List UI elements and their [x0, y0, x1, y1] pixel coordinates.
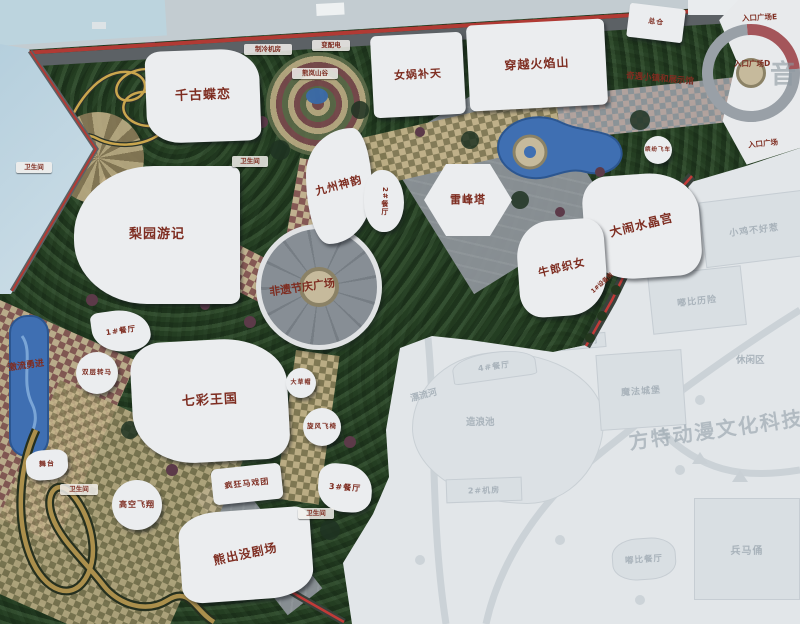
garden-valley-tag: 熊岚山谷: [292, 68, 338, 79]
bld-label: 旋风飞椅: [307, 423, 337, 430]
bld-label: 舞台: [39, 461, 55, 470]
bld-label: 穿越火焰山: [504, 57, 570, 74]
bld-niulang-zhinv: 牛郎织女: [515, 217, 609, 319]
ride-flying-chairs: 旋风飞椅: [303, 408, 341, 446]
bld-label: 熊出没剧场: [213, 542, 279, 568]
chiller-room-tag: 制冷机房: [244, 44, 292, 55]
bld-boonie-bears-theater: 熊出没剧场: [177, 506, 315, 605]
restroom-tag-center: 卫生间: [232, 156, 268, 167]
ride-strawhat: 大草帽: [286, 368, 316, 398]
bld-label: 七彩王国: [182, 392, 239, 409]
bld-label: 双层转马: [82, 369, 112, 376]
ride-crazy-circus: 疯狂马戏团: [210, 462, 283, 505]
bld-qicai-wangguo: 七彩王国: [129, 336, 291, 466]
bld-label: 牛郎织女: [537, 256, 586, 279]
bld-qiangu-dielian: 千古蝶恋: [144, 48, 261, 144]
bld-label: 疯狂马戏团: [224, 477, 270, 490]
label-entrance-plaza-e: 入口广场E: [742, 11, 778, 24]
watermark-music-char: 音: [770, 54, 796, 91]
bld-huoyanshan: 穿越火焰山: [466, 18, 608, 111]
bld-label: 高空飞翔: [119, 501, 155, 510]
label-entrance-plaza-d: 入口广场D: [734, 58, 770, 69]
restroom-tag-nw: 卫生间: [16, 162, 52, 173]
bld-restaurant-2: 2#餐厅: [364, 170, 404, 232]
bld-label: 总仓: [648, 18, 665, 28]
bld-nuwa-butian: 女娲补天: [370, 32, 466, 119]
bld-zongcang: 总仓: [626, 3, 686, 44]
bld-liyuan-youji: 梨园游记: [74, 166, 240, 304]
restroom-tag-south: 卫生间: [298, 508, 334, 519]
restroom-tag-sw: 卫生间: [60, 484, 98, 495]
bld-label: 女娲补天: [394, 68, 443, 83]
bld-label: 梨园游记: [129, 228, 185, 242]
ride-carousel: 双层转马: [76, 352, 118, 394]
bld-label: 九州神韵: [314, 174, 363, 198]
bld-label: 千古蝶恋: [175, 88, 231, 104]
substation-tag: 变配电: [312, 40, 350, 51]
ride-binfen-feiche: 缤纷飞车: [644, 136, 672, 164]
bld-label: 缤纷飞车: [645, 147, 671, 153]
bld-label: 大闹水晶宫: [609, 212, 675, 241]
bld-label: 1#餐厅: [105, 325, 136, 337]
ride-sky-flight: 高空飞翔: [112, 480, 162, 530]
bld-label: 雷峰塔: [450, 194, 486, 206]
bld-label: 大草帽: [290, 380, 311, 387]
park-map-photo: 小鸡不好惹 嘟比历险 魔法城堡 兵马俑 嘟比餐厅 4#餐厅 2#机房 入园大门 …: [0, 0, 800, 624]
heritage-festival-plaza: 非遗节庆广场: [256, 224, 382, 350]
bld-label: 3#餐厅: [329, 482, 362, 493]
bld-label: 2#餐厅: [380, 187, 388, 216]
